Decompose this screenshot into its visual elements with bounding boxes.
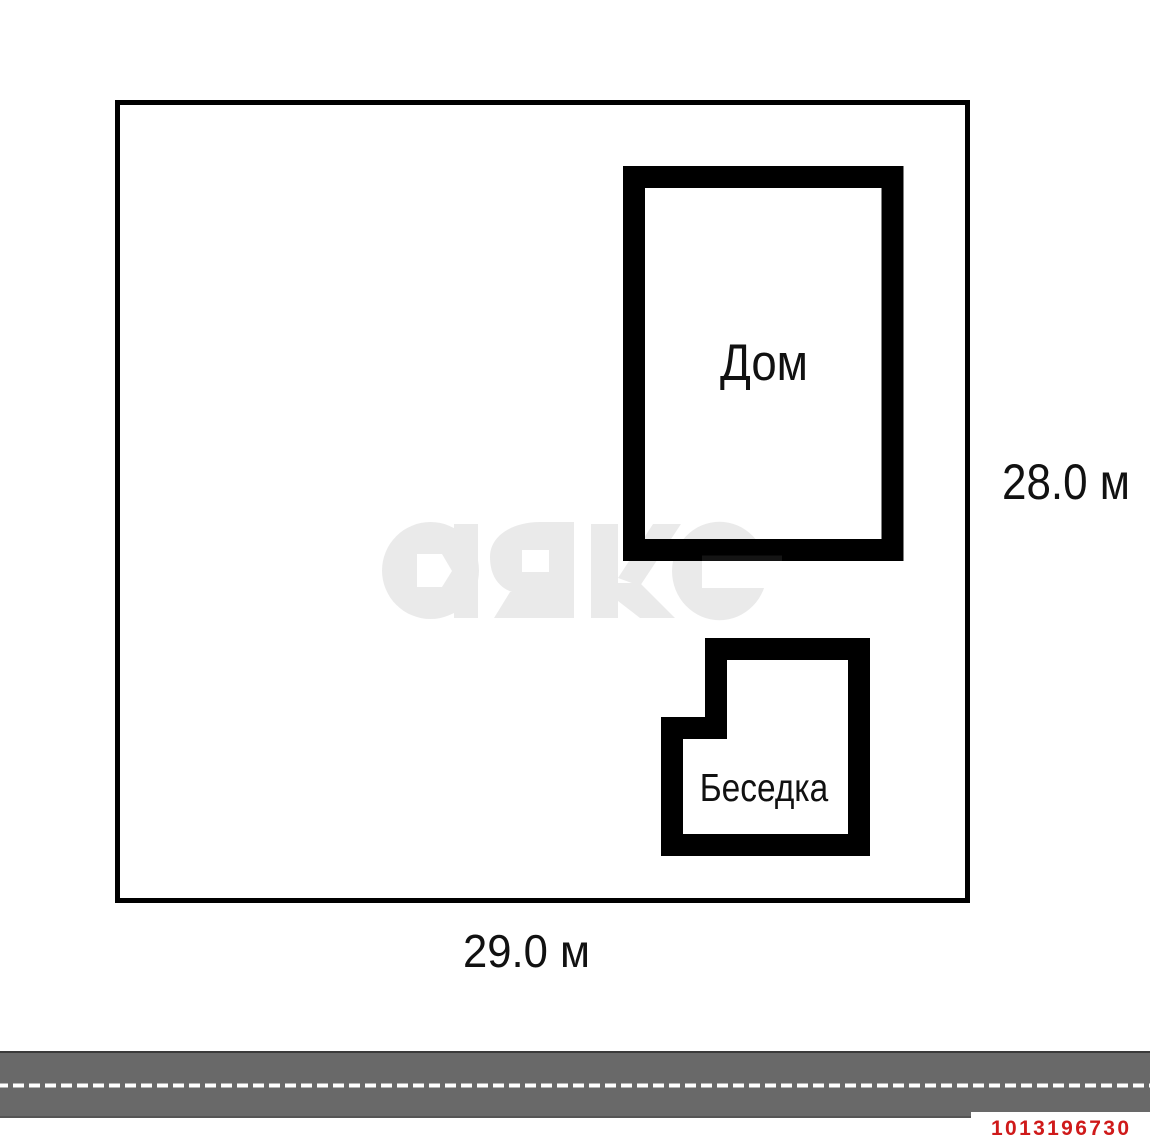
svg-text:28.0 м: 28.0 м (1002, 454, 1130, 510)
svg-text:Беседка: Беседка (700, 767, 829, 810)
svg-text:29.0 м: 29.0 м (463, 925, 590, 977)
svg-text:Дом: Дом (720, 334, 808, 391)
